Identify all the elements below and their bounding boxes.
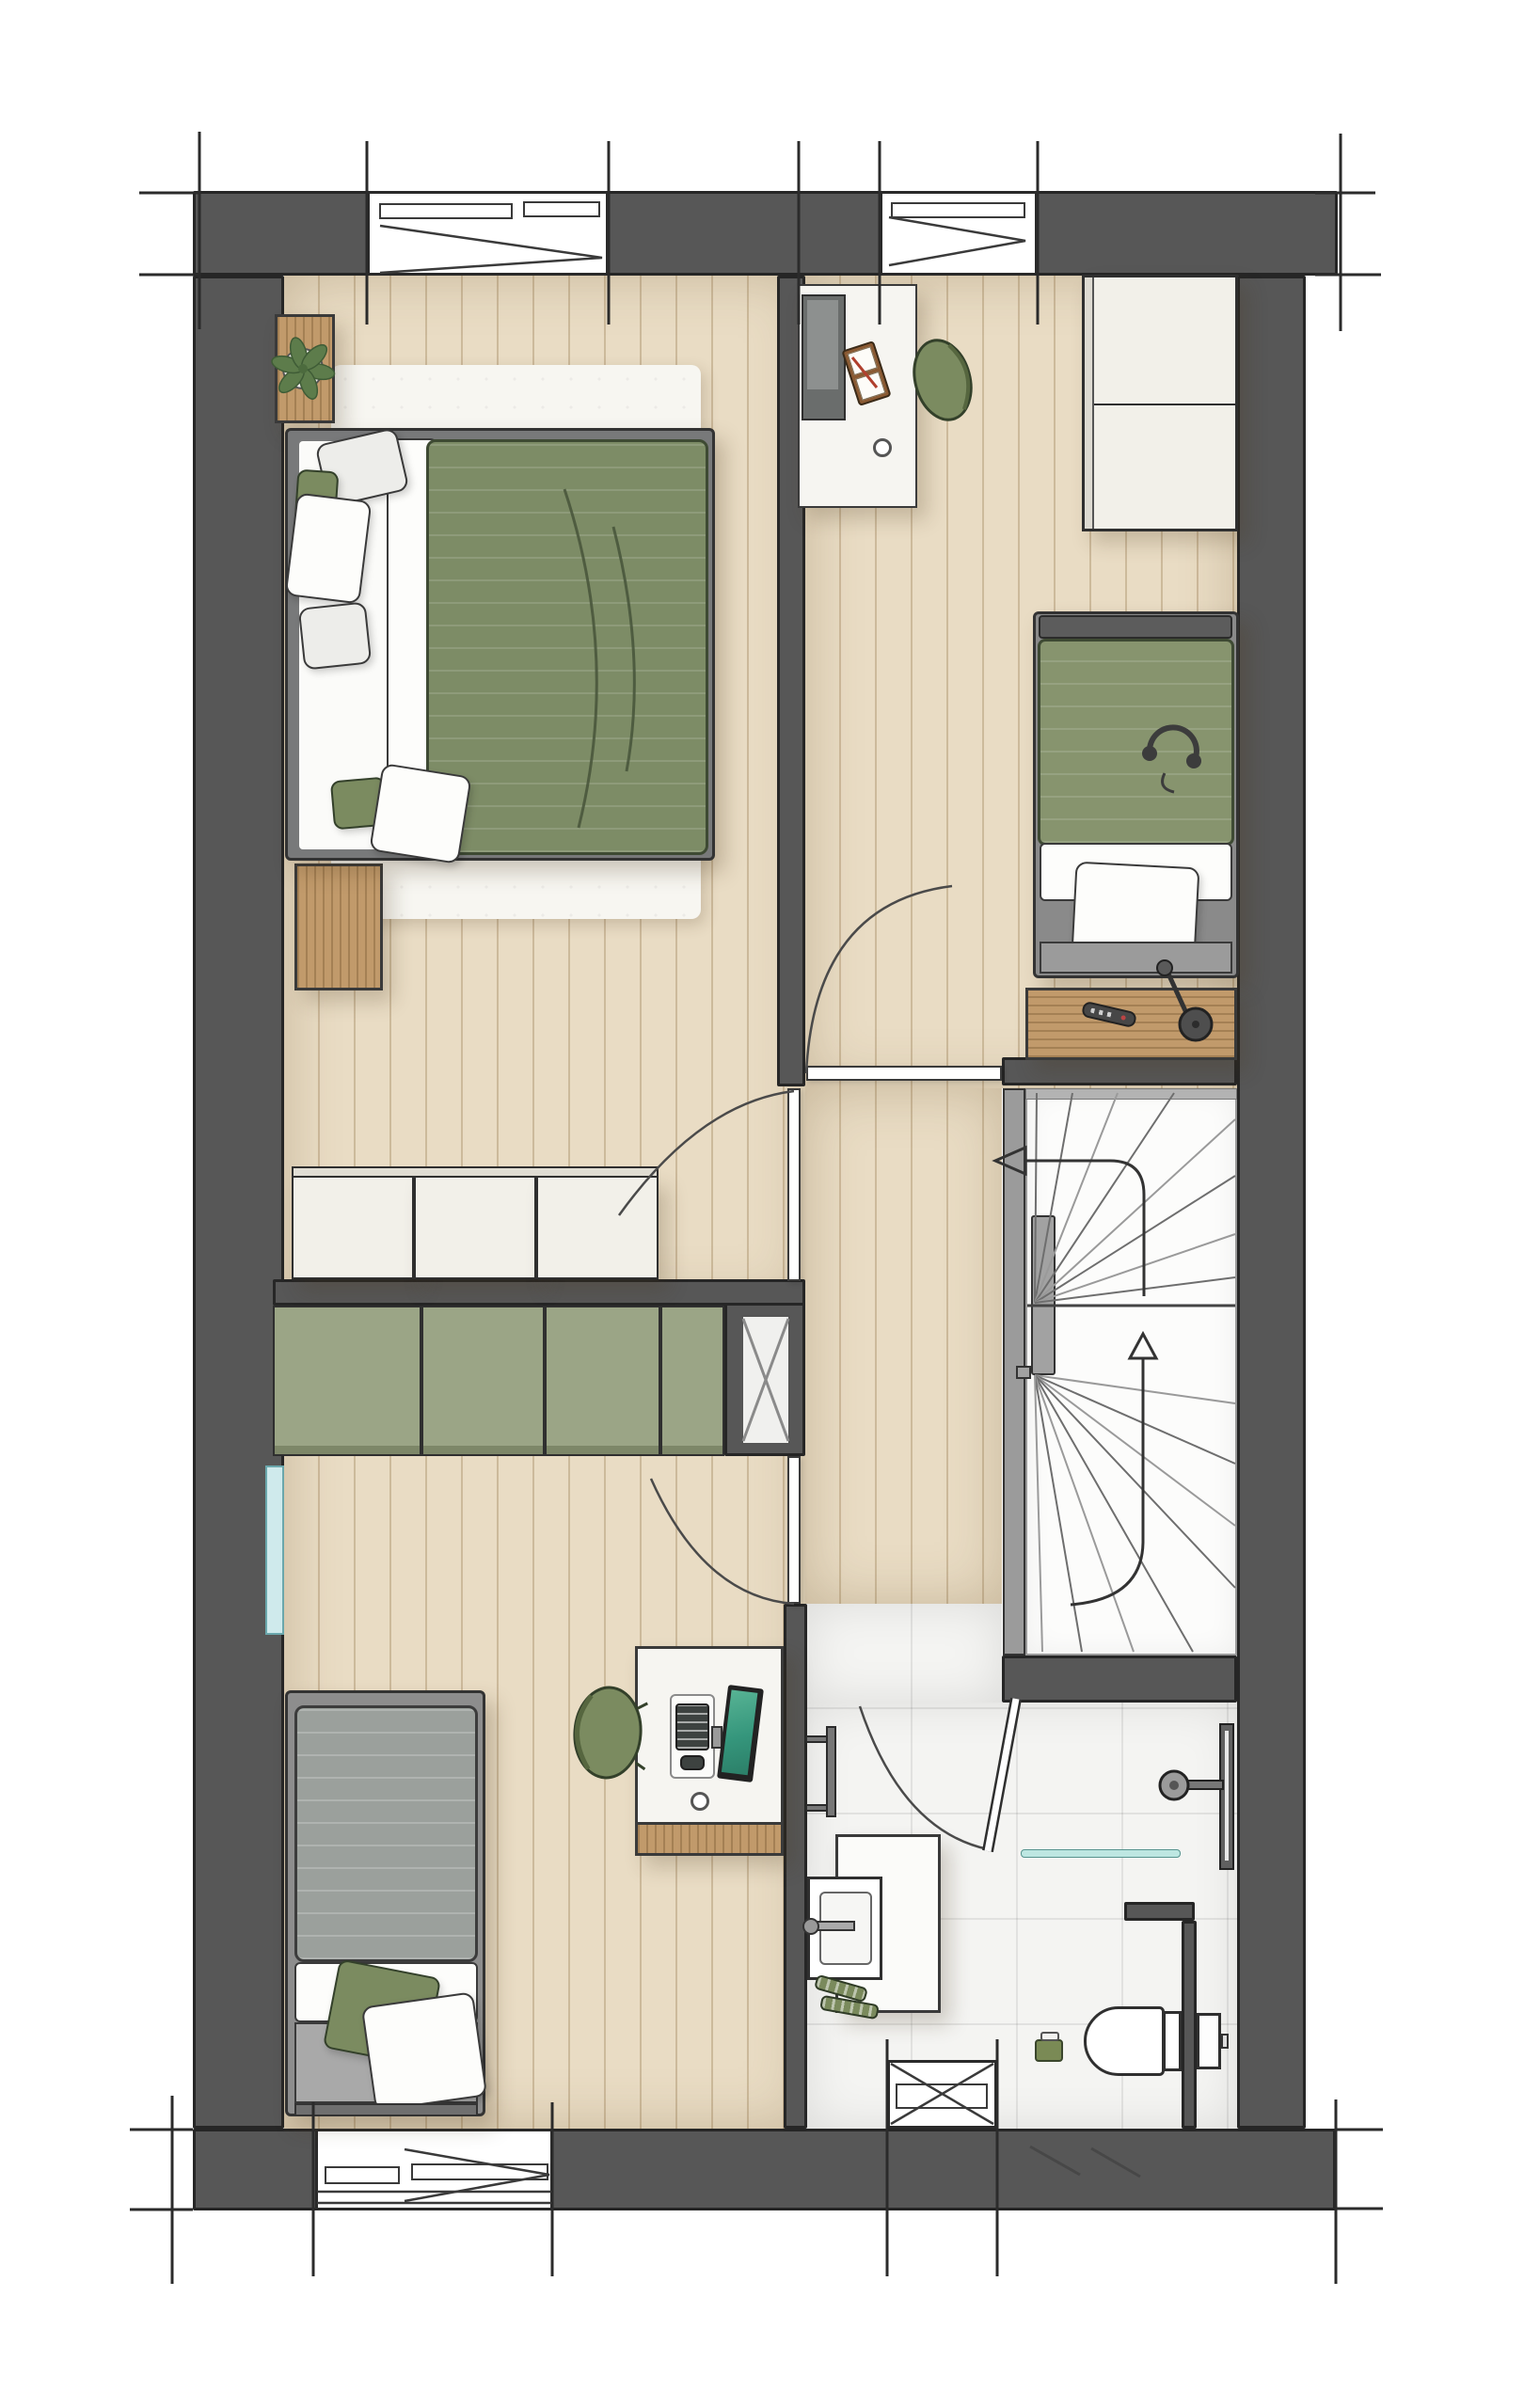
- wardrobe-edge-strip: [1085, 277, 1094, 529]
- pillow: [361, 1991, 487, 2112]
- door-leaf-top-right-bedroom: [806, 1066, 1002, 1081]
- pillow: [298, 601, 373, 670]
- desk-top-right: [798, 284, 917, 508]
- door-leaf-master-bedroom: [787, 1088, 801, 1281]
- book-page: [848, 346, 878, 375]
- remote-button-red: [1120, 1015, 1126, 1021]
- desk-cup: [691, 1792, 709, 1811]
- desk-monitor-screen: [807, 300, 838, 389]
- toilet-cistern: [1197, 2013, 1221, 2069]
- toilet-bowl: [1084, 2006, 1165, 2076]
- toilet-flush-knob: [1221, 2034, 1229, 2049]
- window-bottom-left-vent-2: [411, 2163, 548, 2180]
- open-book: [841, 341, 891, 406]
- bed-duvet-gray: [294, 1705, 478, 1962]
- cabinet-green-door: [545, 1306, 660, 1456]
- door-leaf-bottom-left-bedroom: [787, 1456, 801, 1604]
- pillow: [285, 493, 373, 605]
- wall-bedroom-divider: [273, 1279, 805, 1306]
- window-top-right-vent: [891, 202, 1025, 218]
- nightstand-plant: [275, 314, 335, 423]
- window-top-left-vent-2: [523, 201, 600, 217]
- service-shaft-panel: [741, 1315, 790, 1445]
- cabinet-green-door: [273, 1306, 421, 1456]
- bed-foot-rail: [294, 2103, 478, 2116]
- remote-buttons: [1090, 1008, 1115, 1019]
- book-page: [855, 372, 885, 401]
- towel-radiator-arm: [805, 1804, 828, 1812]
- washbasin-bowl: [819, 1892, 872, 1965]
- wardrobe-top-right: [1082, 275, 1238, 531]
- pillow: [369, 763, 472, 864]
- floor-bathroom-doorway: [807, 1604, 1002, 1703]
- floor-plan: [0, 0, 1540, 2408]
- wardrobe-white-door: [536, 1176, 659, 1279]
- single-bed-top-right: [1033, 611, 1239, 978]
- stair-newel: [1031, 1215, 1056, 1375]
- mouse: [680, 1755, 705, 1770]
- wall-toilet-stub-vertical: [1182, 1921, 1197, 2129]
- window-bathroom-vent: [896, 2083, 988, 2109]
- stair-top-edge: [1025, 1088, 1237, 1100]
- stair-newel-foot: [1016, 1366, 1031, 1379]
- floor-landing: [805, 1088, 1002, 1604]
- bed-foot-platform: [1040, 942, 1232, 974]
- toilet-seat-hinge: [1163, 2011, 1182, 2071]
- wall-west: [193, 276, 284, 2129]
- window-bottom-left-vent-1: [325, 2166, 400, 2184]
- cabinet-green-door: [660, 1306, 724, 1456]
- desk-cup: [873, 438, 892, 457]
- wardrobe-white-door: [292, 1176, 414, 1279]
- wardrobe-door-split: [1094, 404, 1235, 405]
- floor-stairwell: [1025, 1088, 1237, 1655]
- tv-screen: [722, 1690, 758, 1776]
- cabinet-green-door: [421, 1306, 545, 1456]
- bed-headboard: [1039, 615, 1232, 639]
- towel-radiator-arm: [805, 1735, 828, 1743]
- wall-east: [1237, 276, 1306, 2129]
- keyboard: [675, 1703, 709, 1751]
- wall-toilet-stub-horizontal: [1124, 1902, 1195, 1921]
- glass-screen: [1021, 1849, 1181, 1858]
- shower-drain: [1219, 1723, 1234, 1870]
- nightstand-foot: [294, 863, 383, 990]
- desk-monitor: [802, 294, 846, 420]
- desk-drawer-wood: [635, 1822, 784, 1856]
- toilet-brush: [1035, 2039, 1063, 2062]
- single-bed-bottom-left: [285, 1690, 485, 2116]
- wardrobe-white-door: [414, 1176, 536, 1279]
- wall-north: [193, 191, 1338, 276]
- shower-drain-slot: [1225, 1731, 1229, 1861]
- washbasin: [807, 1877, 882, 1980]
- wall-bathroom-west: [784, 1604, 807, 2129]
- wall-stairwell-bathroom: [1002, 1655, 1237, 1703]
- desk-bottom-left: [635, 1646, 784, 1856]
- wall-bedside-shelf: [1002, 1057, 1237, 1085]
- toilet-brush-cap: [1040, 2032, 1059, 2041]
- double-bed: [285, 428, 715, 861]
- tv: [717, 1685, 764, 1782]
- window-top-left-vent-1: [379, 203, 513, 219]
- bed-duvet-green: [1038, 639, 1234, 846]
- window-side-strip: [265, 1465, 284, 1635]
